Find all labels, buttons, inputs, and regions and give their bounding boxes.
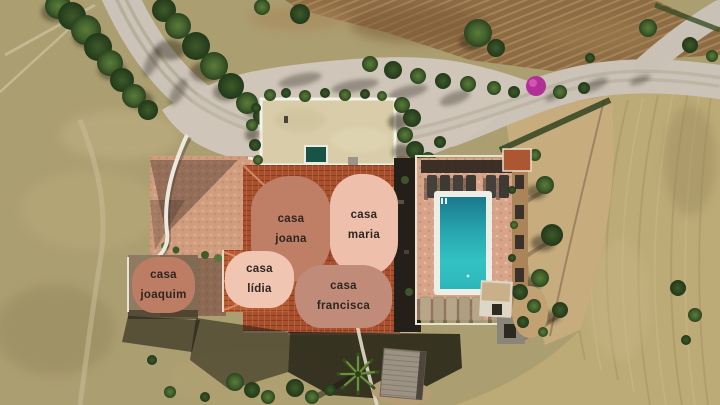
- label-line2: joana: [275, 230, 307, 249]
- label-line1: casa: [278, 210, 305, 229]
- label-casa-joaquim: casa joaquim: [132, 257, 195, 313]
- bougainvillea-bush: [526, 76, 546, 96]
- pool-water: [440, 197, 486, 289]
- label-line1: casa: [246, 260, 273, 279]
- label-line1: casa: [330, 277, 357, 296]
- label-casa-lidia: casa lídia: [225, 251, 294, 308]
- label-line2: lídia: [247, 280, 272, 299]
- skylight: [305, 146, 327, 163]
- pergola-beams: [421, 160, 513, 173]
- label-line1: casa: [351, 206, 378, 225]
- palm-tree: [338, 354, 378, 394]
- label-line2: joaquim: [140, 286, 186, 305]
- aerial-photo: casa joana casa maria casa joaquim casa …: [0, 0, 720, 405]
- garage-flat-roof: [261, 99, 395, 165]
- label-line2: francisca: [317, 297, 370, 316]
- label-casa-maria: casa maria: [330, 174, 398, 276]
- label-line2: maria: [348, 226, 380, 245]
- label-casa-francisca: casa francisca: [295, 265, 392, 328]
- label-line1: casa: [150, 266, 177, 285]
